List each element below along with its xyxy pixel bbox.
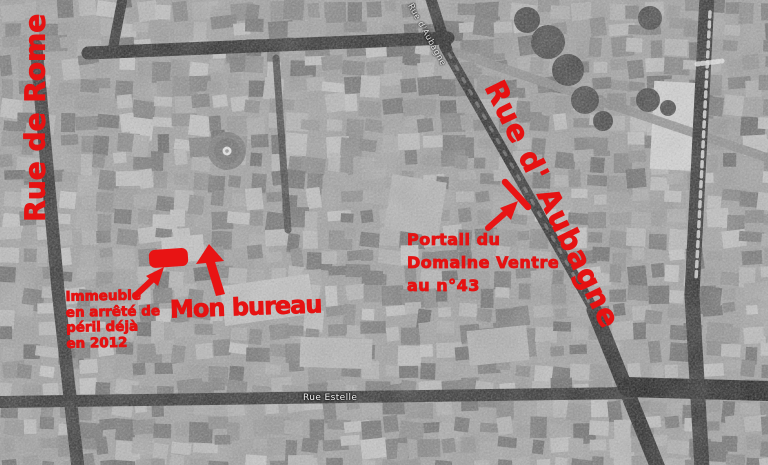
portail-line-1: Portail du xyxy=(407,228,559,251)
portail-line-2: Domaine Ventre xyxy=(407,251,559,274)
annotation-mon-bureau: Mon bureau xyxy=(170,292,322,322)
annotated-aerial-map[interactable]: Rue d'Aubagne Rue Estelle Rue de Rome Ru… xyxy=(0,0,768,465)
photo-grain xyxy=(0,0,768,465)
annotation-immeuble-peril: Immeuble en arrêté de péril déjà en 2012 xyxy=(65,288,160,352)
immeuble-line-3: péril déjà xyxy=(66,319,160,336)
immeuble-line-4: en 2012 xyxy=(66,335,160,352)
annotation-portail-domaine-ventre: Portail du Domaine Ventre au n°43 xyxy=(407,228,559,297)
map-label-rue-estelle: Rue Estelle xyxy=(303,393,357,403)
portail-line-3: au n°43 xyxy=(407,274,559,297)
annotation-rue-de-rome: Rue de Rome xyxy=(20,32,49,222)
aerial-photo-layer xyxy=(0,0,768,465)
